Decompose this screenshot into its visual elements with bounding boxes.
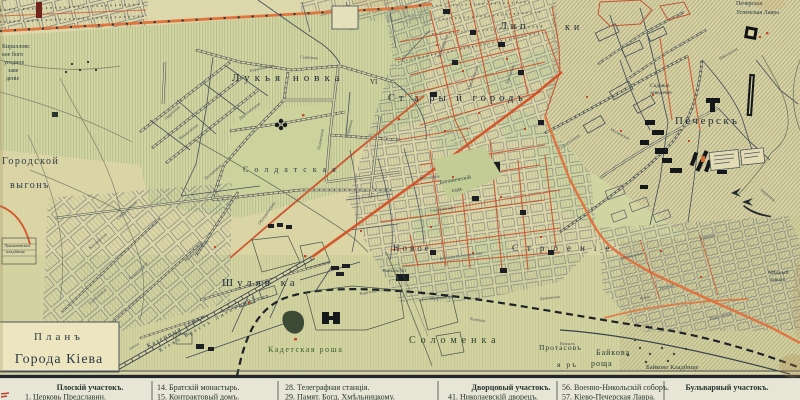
- svg-text:57. Кіево-Печерская Лавра.: 57. Кіево-Печерская Лавра.: [562, 393, 655, 400]
- svg-text:VI: VI: [370, 78, 378, 86]
- svg-text:Новое: Новое: [393, 243, 432, 253]
- svg-text:Лукья новка: Лукья новка: [232, 72, 345, 84]
- svg-text:Печерскъ: Печерскъ: [675, 115, 739, 127]
- svg-text:14. Братскій монастырь.: 14. Братскій монастырь.: [157, 383, 239, 392]
- svg-text:1. Церковь Предславин.: 1. Церковь Предславин.: [25, 393, 106, 400]
- svg-text:кладбище: кладбище: [6, 249, 25, 254]
- svg-text:41. Николаевскій дворецъ.: 41. Николаевскій дворецъ.: [448, 393, 538, 400]
- svg-text:заводъ: заводъ: [770, 277, 786, 283]
- svg-text:Дворцовый участокъ.: Дворцовый участокъ.: [472, 383, 551, 392]
- svg-text:Солдатская: Солдатская: [243, 165, 342, 174]
- svg-text:выгонъ: выгонъ: [10, 180, 50, 191]
- svg-text:Байкова: Байкова: [596, 348, 630, 357]
- svg-text:роща: роща: [591, 359, 613, 368]
- svg-text:Лип: Лип: [500, 21, 530, 32]
- svg-text:Строеніе: Строеніе: [512, 243, 618, 253]
- svg-text:Успенская Лавра: Успенская Лавра: [736, 10, 779, 16]
- svg-text:Мѣдный: Мѣдный: [768, 269, 788, 276]
- svg-text:56. Военно-Никольскій соборъ.: 56. Военно-Никольскій соборъ.: [562, 383, 669, 392]
- svg-text:деніе: деніе: [6, 76, 20, 82]
- svg-text:Плоскій участокъ.: Плоскій участокъ.: [57, 383, 124, 392]
- svg-text:28. Телеграфная станція.: 28. Телеграфная станція.: [285, 383, 369, 392]
- svg-text:Бульварный участокъ.: Бульварный участокъ.: [685, 383, 768, 392]
- svg-text:15. Контрактовый домъ.: 15. Контрактовый домъ.: [157, 393, 239, 400]
- svg-text:заве: заве: [8, 68, 19, 74]
- svg-text:Лукьяновское: Лукьяновское: [4, 243, 31, 248]
- svg-text:ки: ки: [565, 22, 583, 33]
- svg-text:кое бого: кое бого: [2, 51, 23, 58]
- svg-text:Шуляв ка: Шуляв ка: [222, 277, 299, 289]
- svg-text:угодное: угодное: [4, 60, 24, 66]
- svg-text:29. Памят. Богд. Хмѣльницкому: 29. Памят. Богд. Хмѣльницкому.: [285, 393, 395, 400]
- svg-text:Города Кіева: Города Кіева: [15, 352, 103, 367]
- svg-text:Кадетская роша: Кадетская роша: [268, 345, 343, 354]
- svg-text:Садовое: Садовое: [650, 83, 670, 89]
- svg-text:Планъ: Планъ: [34, 331, 84, 343]
- svg-text:Соломенка: Соломенка: [409, 335, 501, 346]
- svg-text:Городской: Городской: [2, 156, 59, 167]
- svg-text:я ръ: я ръ: [557, 360, 578, 369]
- svg-text:Кирилловс: Кирилловс: [2, 44, 30, 50]
- svg-text:Вокзалъ: Вокзалъ: [560, 341, 576, 346]
- svg-text:Ст а ры й городъ: Ст а ры й городъ: [388, 93, 527, 104]
- svg-text:Байково Кладбище: Байково Кладбище: [646, 364, 699, 371]
